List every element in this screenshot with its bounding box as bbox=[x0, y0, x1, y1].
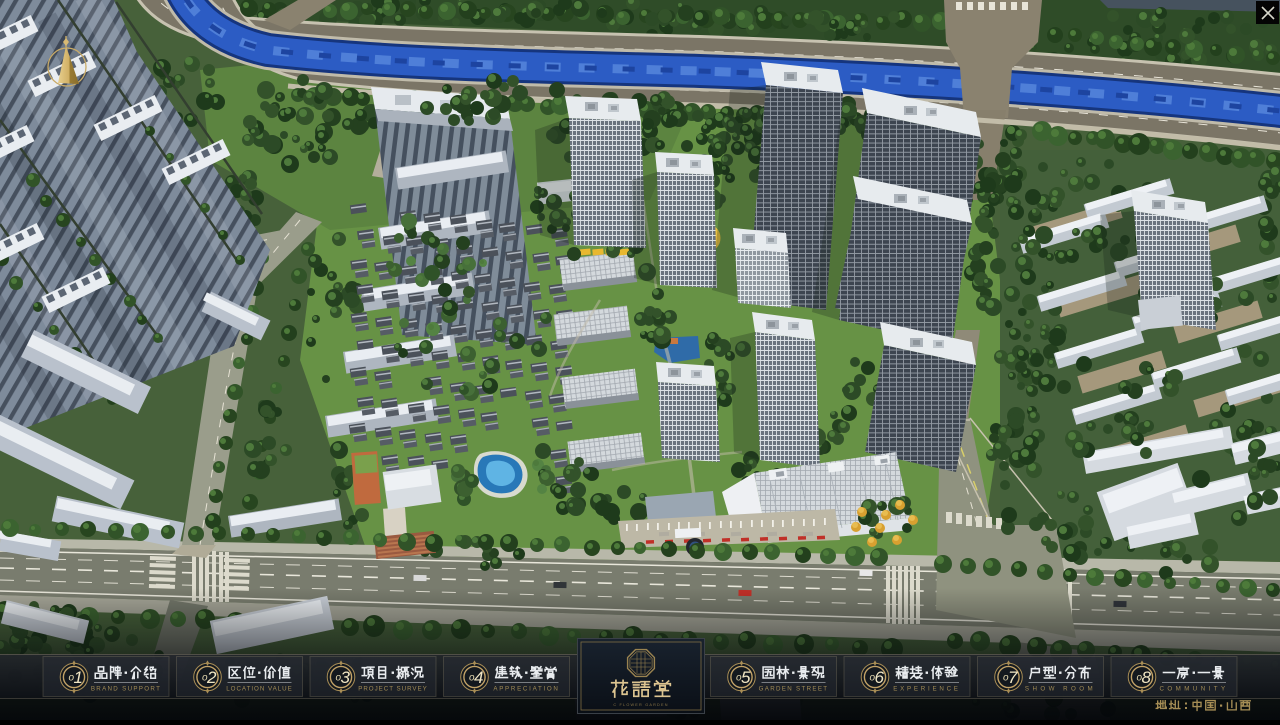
svg-text:8: 8 bbox=[1142, 668, 1152, 687]
svg-text:GARDEN STREET: GARDEN STREET bbox=[759, 686, 829, 693]
svg-text:PROJECT SURVEY: PROJECT SURVEY bbox=[358, 686, 428, 693]
svg-text:4: 4 bbox=[474, 668, 483, 687]
svg-text:7: 7 bbox=[1008, 668, 1018, 687]
svg-text:LOCATION VALUE: LOCATION VALUE bbox=[226, 686, 292, 693]
svg-text:BRAND SUPPORT: BRAND SUPPORT bbox=[91, 686, 161, 693]
svg-text:EXPERIENCE: EXPERIENCE bbox=[893, 686, 960, 693]
svg-text:1: 1 bbox=[74, 668, 83, 687]
svg-text:COMMUNITY: COMMUNITY bbox=[1159, 686, 1228, 693]
svg-text:2: 2 bbox=[206, 668, 217, 687]
svg-text:6: 6 bbox=[875, 668, 885, 687]
svg-text:5: 5 bbox=[741, 668, 751, 687]
svg-text:C FLOWER GARDEN: C FLOWER GARDEN bbox=[613, 703, 668, 707]
svg-text:3: 3 bbox=[341, 668, 351, 687]
svg-text:SHOW ROOM: SHOW ROOM bbox=[1025, 686, 1096, 693]
svg-text:APPRECIATION: APPRECIATION bbox=[493, 686, 559, 693]
